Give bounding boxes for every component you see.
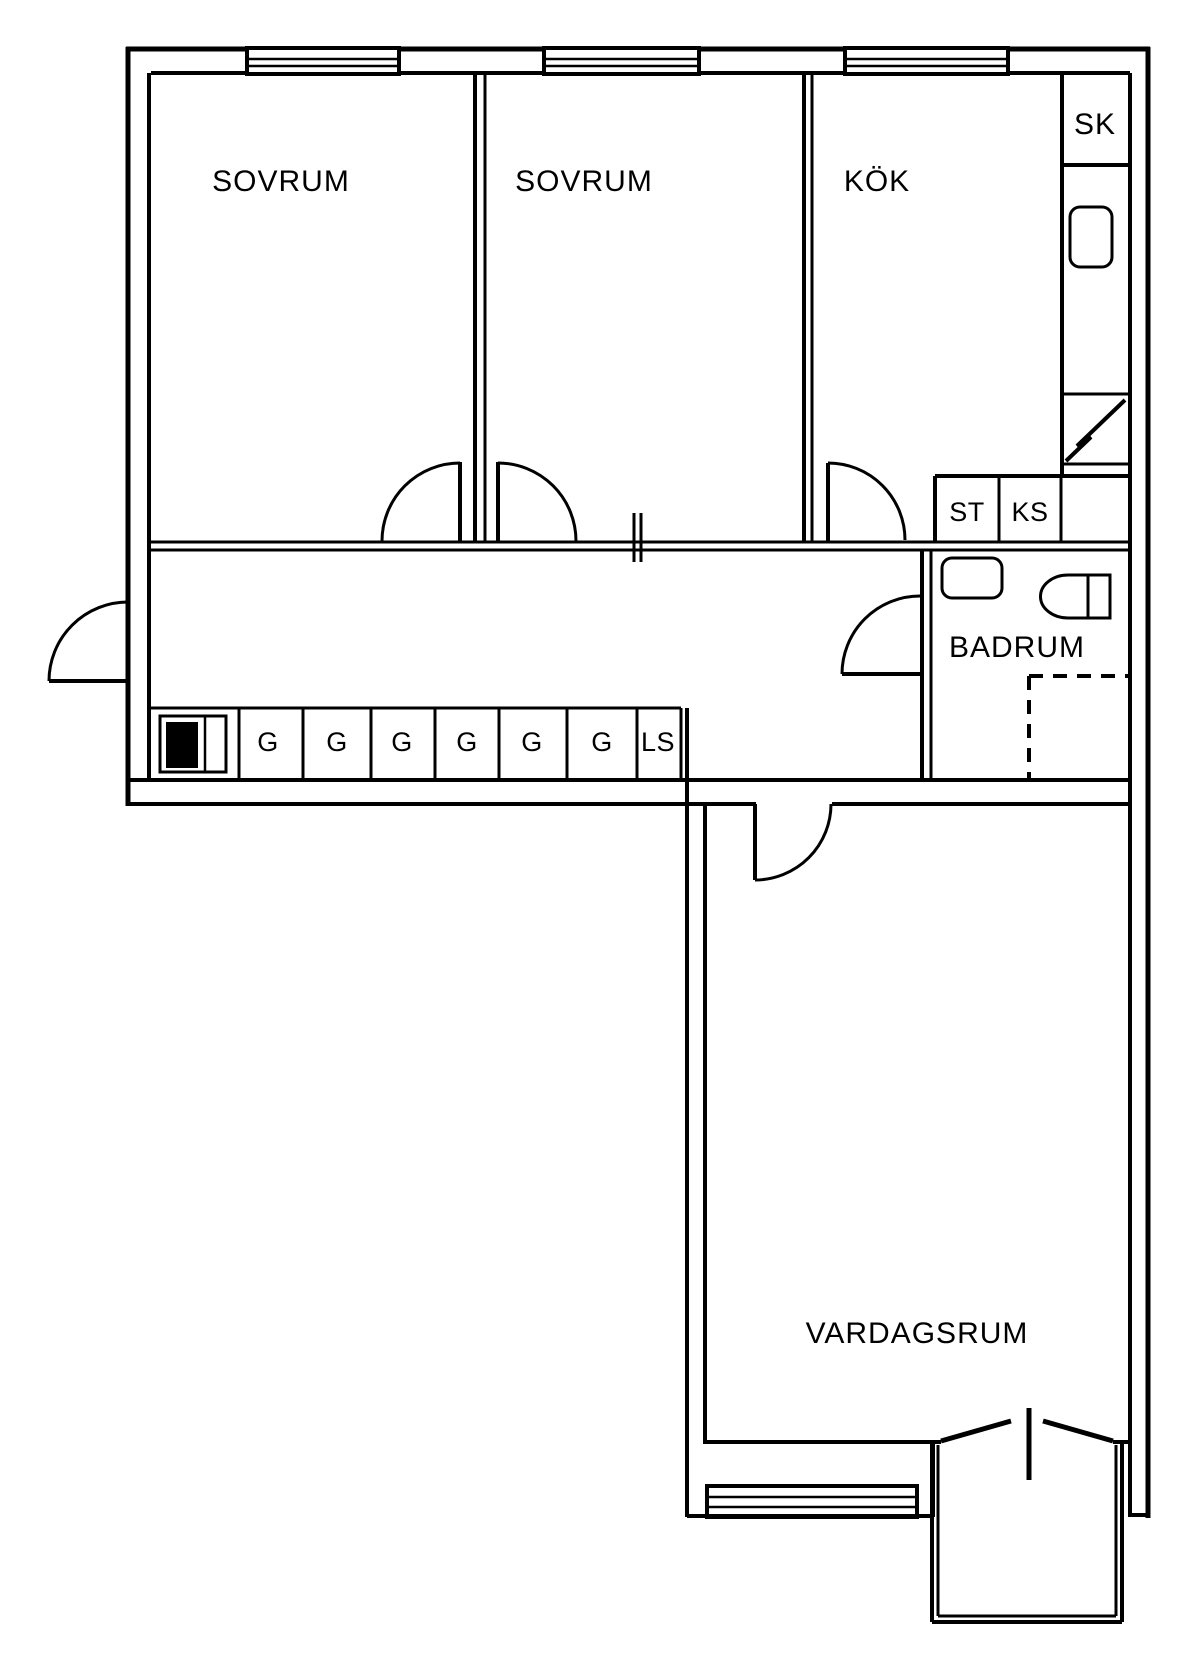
floorplan: SOVRUM SOVRUM KÖK SK ST KS BADRUM G G G … <box>0 0 1200 1671</box>
room-labels: SOVRUM SOVRUM KÖK SK ST KS BADRUM G G G … <box>212 108 1116 1350</box>
room-label-badrum: BADRUM <box>949 631 1085 664</box>
door-sovrum-1 <box>382 462 460 541</box>
toilet-bowl <box>1040 575 1088 618</box>
door-arc <box>382 463 460 541</box>
kitchen-sink-icon <box>1070 207 1112 267</box>
door-kok <box>828 463 905 541</box>
bathroom-sink-icon <box>942 558 1002 598</box>
window-north-3 <box>843 46 1010 77</box>
stove-zigzag-icon <box>1066 400 1125 461</box>
balcony-door-swing-left <box>941 1421 1011 1441</box>
door-arc <box>755 804 831 880</box>
door-entrance <box>49 602 128 681</box>
door-vardagsrum <box>755 804 831 880</box>
room-label-vardagsrum: VARDAGSRUM <box>806 1317 1029 1350</box>
closet-label-ks: KS <box>1011 497 1048 527</box>
door-arc <box>498 463 576 541</box>
exterior-walls <box>126 47 1150 1518</box>
wardrobe-label-g-1: G <box>257 727 279 757</box>
door-balcony <box>941 1408 1113 1480</box>
balcony-door-swing-right <box>1043 1421 1113 1441</box>
room-label-kok: KÖK <box>844 165 910 198</box>
shower-zone-dashed <box>1029 676 1128 781</box>
closet-label-st: ST <box>949 497 985 527</box>
door-arc <box>828 463 905 540</box>
fixtures <box>942 207 1128 781</box>
window-north-1 <box>245 46 401 77</box>
closet-label-sk: SK <box>1074 108 1116 141</box>
door-sovrum-2 <box>498 462 576 541</box>
wardrobe-label-g-5: G <box>521 727 543 757</box>
room-label-sovrum-1: SOVRUM <box>212 165 350 198</box>
toilet-tank <box>1088 575 1110 618</box>
wardrobe-label-g-3: G <box>391 727 413 757</box>
window-north-2 <box>542 46 701 77</box>
wardrobe-label-g-2: G <box>326 727 348 757</box>
door-arc <box>49 602 128 681</box>
window-south-livingroom <box>707 1486 917 1517</box>
door-badrum <box>842 596 920 674</box>
cabinet-dark-fill <box>166 722 198 768</box>
wardrobe-label-g-4: G <box>456 727 478 757</box>
closet-label-ls: LS <box>641 727 675 757</box>
window-frame <box>707 1486 917 1517</box>
room-label-sovrum-2: SOVRUM <box>515 165 653 198</box>
door-arc <box>842 596 920 674</box>
toilet-icon <box>1040 575 1110 618</box>
wardrobe-label-g-6: G <box>591 727 613 757</box>
